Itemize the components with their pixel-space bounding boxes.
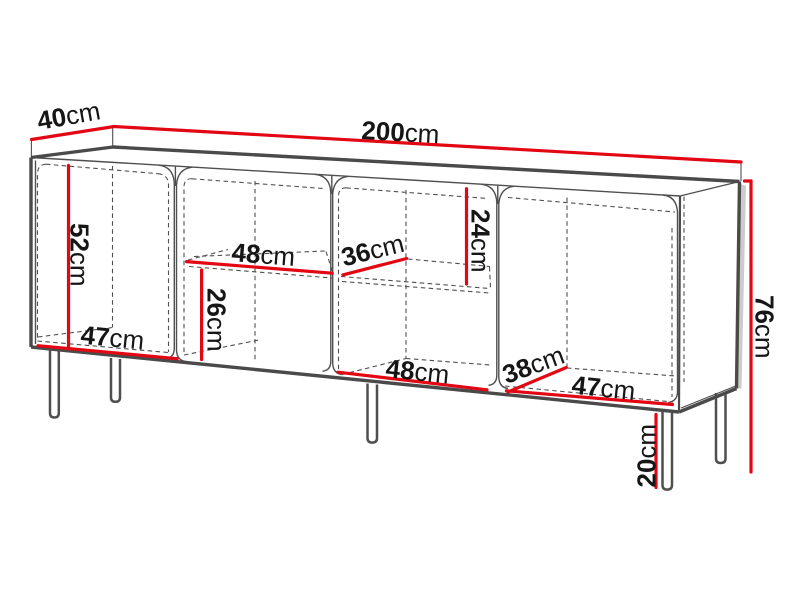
svg-text:48cm: 48cm — [231, 237, 297, 272]
svg-text:200cm: 200cm — [361, 115, 441, 149]
svg-text:20cm: 20cm — [632, 424, 662, 488]
svg-text:76cm: 76cm — [750, 295, 780, 359]
svg-text:26cm: 26cm — [202, 288, 232, 352]
svg-text:24cm: 24cm — [466, 209, 496, 273]
svg-text:47cm: 47cm — [79, 320, 145, 356]
svg-text:52cm: 52cm — [65, 223, 95, 287]
